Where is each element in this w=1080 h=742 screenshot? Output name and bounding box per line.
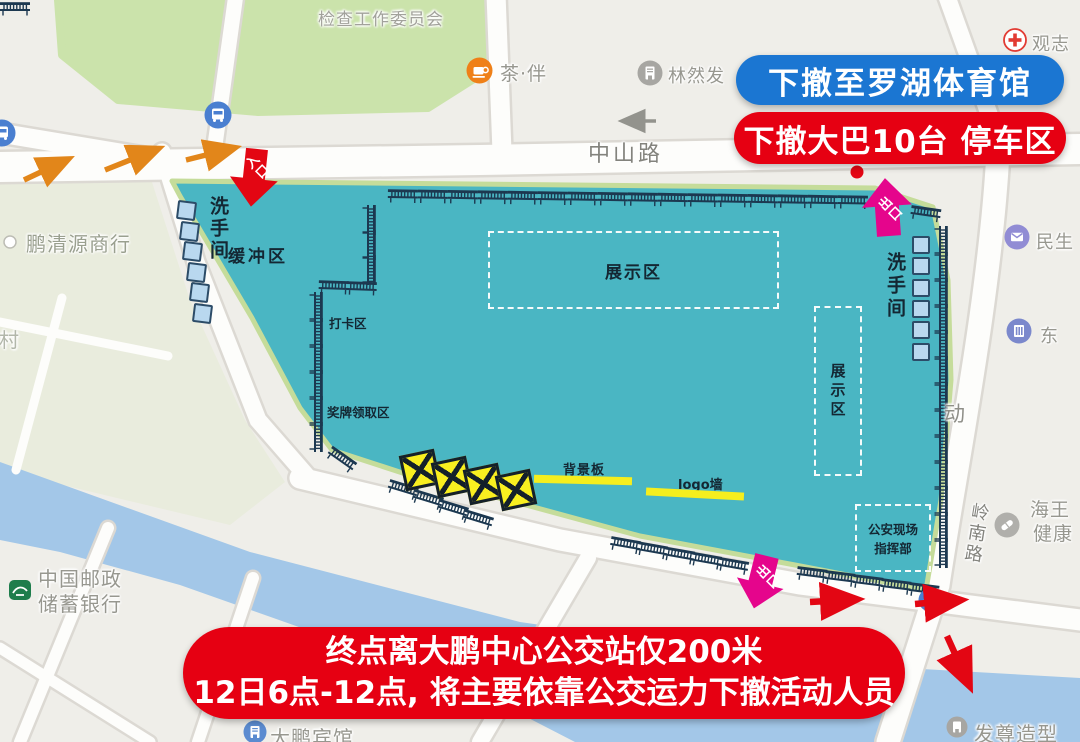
banner-bus-parking: 下撤大巴10台 停车区	[734, 112, 1066, 164]
exit-top-label: 出口	[872, 193, 905, 226]
orange-route-arrows	[24, 150, 226, 180]
banner-bus-parking-text: 下撤大巴10台 停车区	[744, 116, 1057, 161]
exit-bottom-label: 出口	[750, 561, 783, 594]
entrance-label: 入口	[239, 151, 272, 184]
bottom-notice-line2: 12日6点-12点, 将主要依靠公交运力下撤活动人员	[193, 673, 894, 714]
banner-evacuate-text: 下撤至罗湖体育馆	[768, 58, 1032, 103]
stop-point-dot	[851, 166, 864, 179]
banner-bottom-notice: 终点离大鹏中心公交站仅200米 12日6点-12点, 将主要依靠公交运力下撤活动…	[183, 627, 905, 719]
banner-evacuate-destination: 下撤至罗湖体育馆	[736, 55, 1064, 105]
bottom-notice-line1: 终点离大鹏中心公交站仅200米	[326, 632, 763, 673]
evacuation-map: 展示区 展示区 公安现场 指挥部 缓冲区 洗手间 洗手间 打卡区 奖牌领取区 背…	[0, 0, 1080, 742]
